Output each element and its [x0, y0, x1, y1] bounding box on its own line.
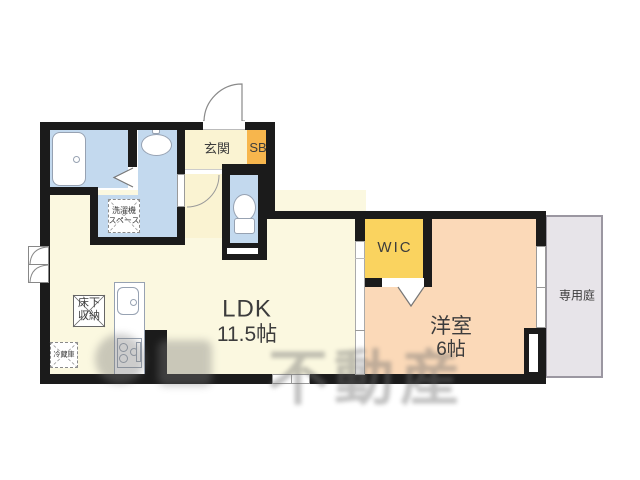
wall-bedroom-right: [536, 211, 546, 248]
toilet-wall-slot: [227, 248, 258, 254]
kitchen-faucet: [130, 299, 137, 306]
watermark-blob-2: [158, 340, 212, 386]
wic-door-opening: [382, 278, 424, 287]
wall-toilet-left: [222, 167, 230, 245]
sliding-door-track-line: [355, 258, 365, 259]
toilet-tank: [234, 218, 255, 234]
bedroom-label: 洋室: [430, 316, 472, 338]
left-window-lower: [28, 264, 49, 283]
floor-plan: LDK 11.5帖 洋室 6帖 WIC 玄関 SB 専用庭 床下 収納 冷蔵庫 …: [0, 0, 640, 480]
entry-door-arc: [204, 84, 242, 121]
wall-washroom-bottom: [90, 237, 182, 245]
bathtub-drain: [73, 156, 80, 163]
bedroom-right-window-divider: [537, 287, 545, 288]
floor-storage-label-1: 床下: [78, 298, 100, 310]
bathtub: [52, 132, 86, 186]
floor-storage-label-2: 収納: [78, 311, 100, 323]
watermark-blob-1: [95, 334, 145, 384]
genkan-step: [185, 169, 222, 174]
wall-bath-divider: [128, 130, 137, 169]
wall-main-top: [266, 211, 546, 219]
fridge-label: 冷蔵庫: [54, 351, 75, 358]
garden-label: 専用庭: [559, 290, 595, 303]
bedroom-area-label: 6帖: [436, 340, 466, 360]
genkan-label: 玄関: [204, 142, 230, 156]
washer-label-2: スペース: [108, 217, 139, 225]
left-window-upper: [28, 246, 49, 265]
washer-label-1: 洗濯機: [112, 207, 136, 215]
wall-wic-bottom-stub: [364, 278, 383, 287]
wall-wic-left: [355, 211, 365, 241]
bath-door-opening: [128, 167, 138, 188]
ldk-area-label: 11.5帖: [217, 324, 277, 346]
entry-door-threshold: [203, 120, 245, 130]
shoebox-label: SB: [249, 141, 266, 155]
corner-block-slot: [529, 334, 538, 372]
hall-door-leaf: [177, 174, 185, 207]
wall-wic-right: [423, 211, 432, 287]
ldk-label: LDK: [222, 296, 272, 321]
toilet-bowl: [233, 194, 256, 221]
washbasin: [141, 134, 172, 156]
wall-nook-left: [90, 187, 98, 245]
wic-label: WIC: [377, 240, 412, 256]
hall-floor: [185, 172, 222, 238]
wall-toilet-top: [222, 164, 275, 175]
